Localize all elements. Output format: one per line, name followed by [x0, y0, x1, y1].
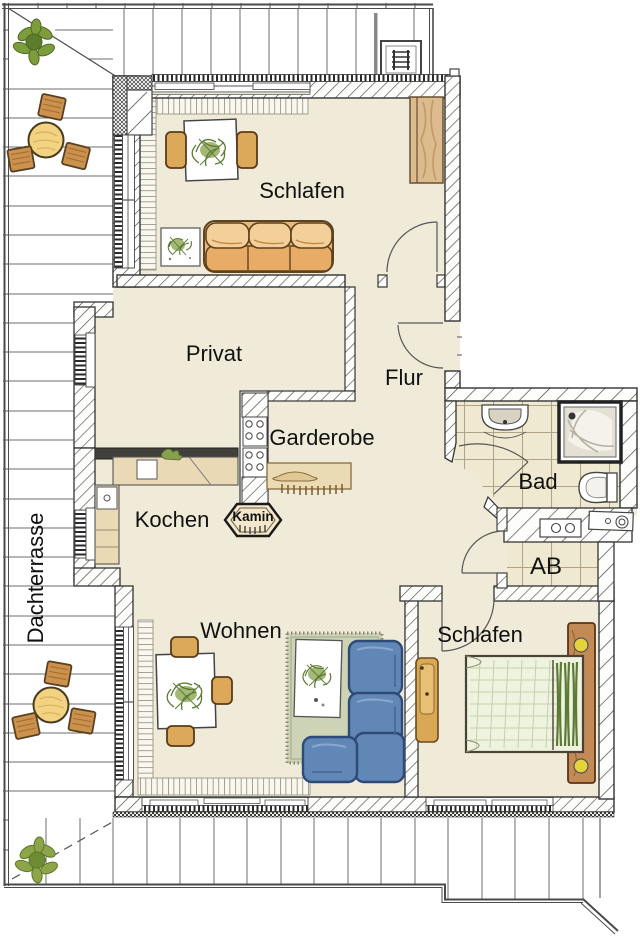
svg-text:Privat: Privat: [186, 341, 242, 366]
svg-text:Kochen: Kochen: [135, 507, 210, 532]
svg-text:Dachterrasse: Dachterrasse: [23, 513, 48, 644]
svg-text:AB: AB: [530, 553, 562, 580]
svg-text:Garderobe: Garderobe: [269, 425, 374, 450]
svg-text:Schlafen: Schlafen: [437, 622, 523, 647]
svg-text:Kamin: Kamin: [232, 509, 273, 524]
svg-text:Wohnen: Wohnen: [200, 618, 282, 643]
svg-text:Schlafen: Schlafen: [259, 178, 345, 203]
svg-text:Bad: Bad: [518, 469, 557, 494]
svg-text:Flur: Flur: [385, 365, 423, 390]
